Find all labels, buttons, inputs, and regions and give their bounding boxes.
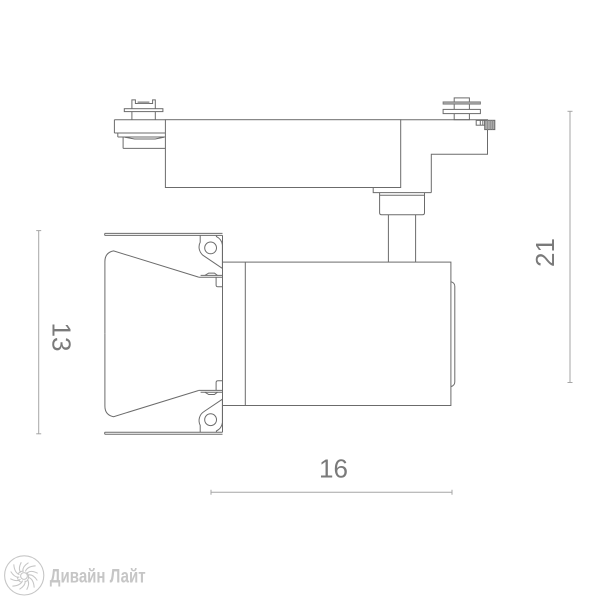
svg-text:Дивайн Лайт: Дивайн Лайт <box>50 564 146 586</box>
svg-text:21: 21 <box>530 238 560 267</box>
svg-text:13: 13 <box>47 323 77 352</box>
svg-text:16: 16 <box>319 454 348 484</box>
